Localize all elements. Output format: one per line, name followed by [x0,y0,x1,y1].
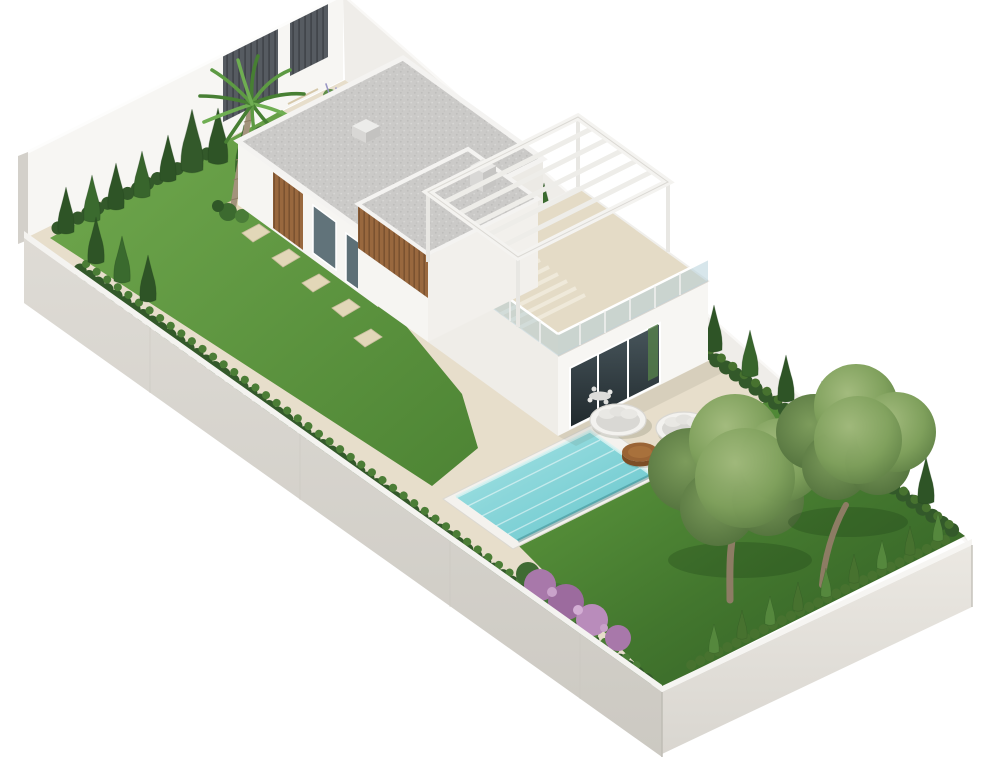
interior-chair [608,390,613,395]
interior-chair [588,398,593,403]
cypress-tree-icon [918,457,934,504]
cypress-tree-icon [742,330,758,377]
interior-chair [604,400,609,405]
cypress-tree-icon [778,355,794,402]
property-render-image [0,0,998,768]
tree-shadow [668,542,812,578]
northwest-wall-end-face [18,152,28,244]
tree-shadow [788,507,908,537]
cypress-tree-icon [706,305,722,352]
villa-plot-render [0,0,998,768]
interior-chair [592,387,597,392]
interior-greenery-reflection [648,324,658,381]
